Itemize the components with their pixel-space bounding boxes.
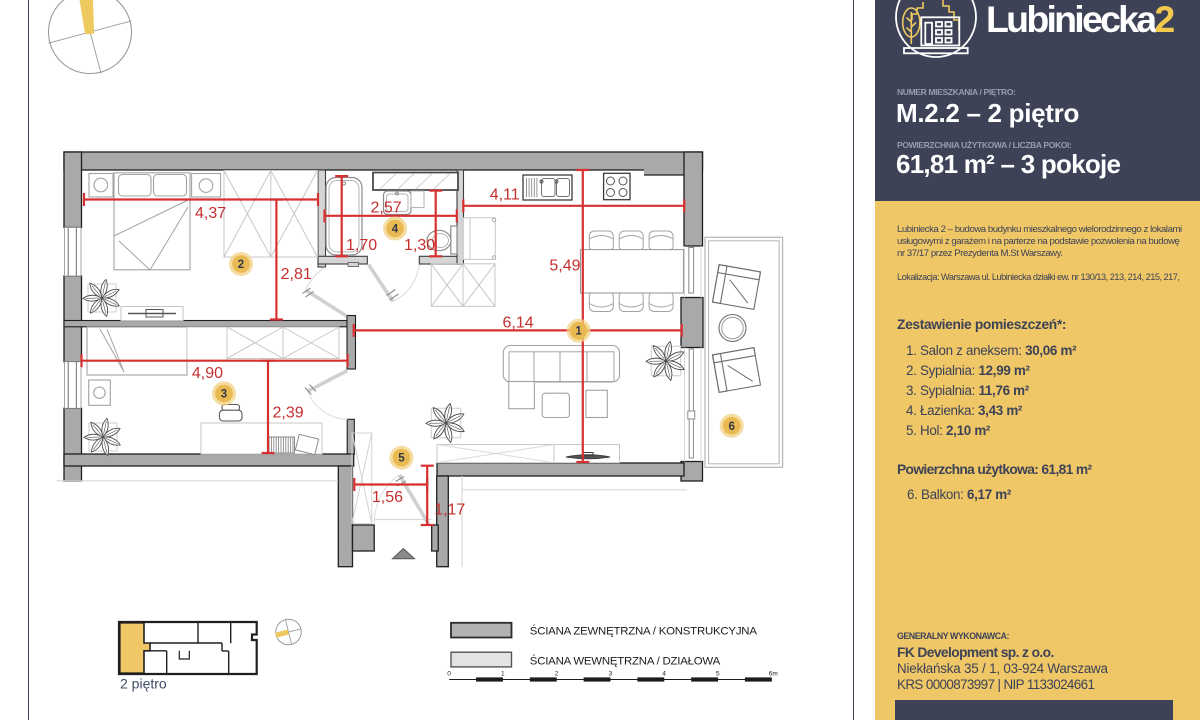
svg-text:ŚCIANA WEWNĘTRZNA / DZIAŁOWA: ŚCIANA WEWNĘTRZNA / DZIAŁOWA xyxy=(530,654,721,667)
svg-text:2: 2 xyxy=(238,259,244,271)
svg-text:3: 3 xyxy=(221,389,227,401)
svg-text:ŚCIANA ZEWNĘTRZNA / KONSTRUKCY: ŚCIANA ZEWNĘTRZNA / KONSTRUKCYJNA xyxy=(530,625,758,638)
svg-text:2,81: 2,81 xyxy=(281,266,312,283)
svg-text:4: 4 xyxy=(392,224,399,236)
svg-text:2,57: 2,57 xyxy=(371,200,402,217)
svg-text:4,11: 4,11 xyxy=(490,187,520,204)
svg-text:5: 5 xyxy=(716,671,720,678)
svg-text:4,90: 4,90 xyxy=(192,365,223,382)
svg-text:3: 3 xyxy=(609,671,613,678)
svg-text:1,17: 1,17 xyxy=(434,502,465,519)
svg-text:1,56: 1,56 xyxy=(372,489,403,506)
svg-text:2 piętro: 2 piętro xyxy=(120,676,167,692)
svg-text:1,30: 1,30 xyxy=(404,237,435,254)
svg-text:6: 6 xyxy=(728,421,734,433)
svg-text:1: 1 xyxy=(501,671,505,678)
svg-text:1,70: 1,70 xyxy=(346,237,377,254)
svg-text:5,49: 5,49 xyxy=(549,258,580,275)
svg-text:2: 2 xyxy=(555,671,559,678)
svg-text:1: 1 xyxy=(575,326,582,338)
svg-text:6,14: 6,14 xyxy=(503,315,534,332)
svg-text:6m: 6m xyxy=(769,671,778,678)
svg-text:2,39: 2,39 xyxy=(273,405,304,422)
svg-text:0: 0 xyxy=(447,671,451,678)
svg-text:5: 5 xyxy=(398,453,405,465)
svg-text:4: 4 xyxy=(662,671,666,678)
svg-text:4,37: 4,37 xyxy=(195,205,226,222)
